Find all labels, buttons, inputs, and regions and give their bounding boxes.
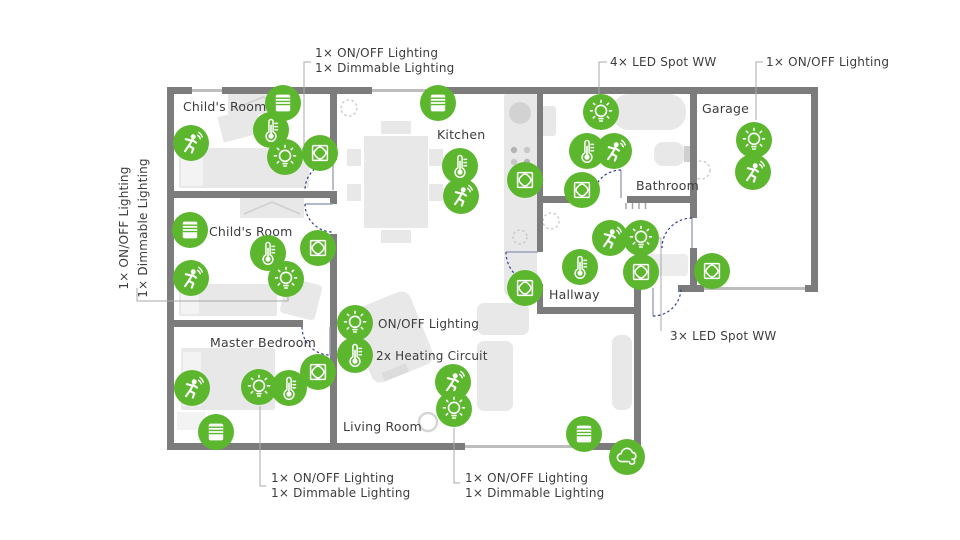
touch-switch-icon[interactable] [302, 135, 338, 171]
device-markers [172, 85, 772, 475]
legend-heating-circuit: 2x Heating Circuit [376, 349, 488, 363]
wall-segment [167, 191, 337, 198]
sofa [477, 303, 529, 335]
stove-burner [511, 147, 517, 153]
chair [347, 149, 361, 166]
annotation-bottom-center-line1: 1× ON/OFF Lighting [465, 471, 588, 485]
touch-switch-icon[interactable] [300, 354, 336, 390]
chair [381, 121, 411, 134]
wall-segment [634, 307, 641, 450]
touch-switch-icon[interactable] [564, 172, 600, 208]
room-label-kitchen: Kitchen [437, 127, 485, 142]
sink [509, 102, 531, 124]
toilet [654, 142, 684, 166]
annotation-bottom-center-line2: 1× Dimmable Lighting [465, 486, 604, 500]
motion-sensor-icon[interactable] [443, 178, 479, 214]
thermometer-icon[interactable] [337, 337, 373, 373]
bathtub [612, 94, 686, 130]
wall-segment [330, 320, 337, 327]
room-label-childs-room-1: Child's Room [183, 99, 266, 114]
room-label-bathroom: Bathroom [636, 178, 699, 193]
window [372, 89, 430, 92]
wall-segment [678, 285, 704, 292]
stove-burner [511, 159, 517, 165]
touch-switch-icon[interactable] [300, 230, 336, 266]
wall-segment [627, 196, 690, 203]
motion-sensor-icon[interactable] [174, 370, 210, 406]
stove-burner [524, 147, 530, 153]
door-swing-arc [662, 218, 692, 248]
lightbulb-icon[interactable] [623, 220, 659, 256]
weather-station-icon[interactable] [609, 439, 645, 475]
dining-table [364, 136, 428, 228]
lightbulb-icon[interactable] [267, 139, 303, 175]
smart-home-floor-plan: Child's Room Child's Room Master Bedroom… [0, 0, 960, 540]
blinds-icon[interactable] [198, 414, 234, 450]
chair [429, 184, 443, 201]
wall-segment [430, 87, 818, 94]
ceiling-lamp-icon [543, 213, 559, 229]
blinds-icon[interactable] [566, 416, 602, 452]
blinds-icon[interactable] [420, 85, 456, 121]
door-swing-arc [653, 288, 681, 316]
annotation-led-spot-bathroom: 4× LED Spot WW [610, 55, 716, 69]
annotation-bottom-left-line1: 1× ON/OFF Lighting [271, 471, 394, 485]
leader-line [304, 62, 311, 150]
touch-switch-icon[interactable] [507, 162, 543, 198]
motion-sensor-icon[interactable] [173, 260, 209, 296]
shelf [612, 335, 632, 410]
annotation-bottom-left-line2: 1× Dimmable Lighting [271, 486, 410, 500]
radiator [626, 203, 646, 209]
wall-segment [811, 87, 818, 292]
motion-sensor-icon[interactable] [173, 125, 209, 161]
thermometer-icon[interactable] [562, 249, 598, 285]
motion-sensor-icon[interactable] [596, 133, 632, 169]
touch-switch-icon[interactable] [623, 254, 659, 290]
room-label-master-bedroom: Master Bedroom [210, 335, 316, 350]
door-swing-arc [305, 204, 333, 232]
annotation-left-rotated-line1: 1× ON/OFF Lighting [117, 166, 131, 289]
annotation-led-spot-hallway: 3× LED Spot WW [670, 329, 776, 343]
annotation-left-rotated-line2: 1× Dimmable Lighting [136, 158, 150, 297]
toilet-tank [684, 146, 690, 162]
touch-switch-icon[interactable] [694, 253, 730, 289]
ceiling-lamp-icon [341, 100, 357, 116]
wall-segment [330, 234, 337, 450]
leader-line [454, 428, 460, 483]
chair [381, 230, 411, 243]
wardrobe [240, 198, 304, 218]
legend-onoff-lighting: ON/OFF Lighting [378, 317, 479, 331]
wall-segment [167, 320, 303, 327]
wall-segment [537, 307, 641, 314]
annotation-top-left-line2: 1× Dimmable Lighting [315, 61, 454, 75]
lightbulb-icon[interactable] [268, 261, 304, 297]
lightbulb-icon[interactable] [583, 94, 619, 130]
room-label-childs-room-2: Child's Room [209, 224, 292, 239]
motion-sensor-icon[interactable] [735, 154, 771, 190]
chair [347, 184, 361, 201]
wall-segment [167, 87, 174, 450]
window [465, 445, 582, 448]
annotation-top-left-line1: 1× ON/OFF Lighting [315, 46, 438, 60]
room-label-garage: Garage [702, 101, 749, 116]
room-label-hallway: Hallway [549, 287, 600, 302]
lightbulb-icon[interactable] [337, 305, 373, 341]
annotation-garage-lighting: 1× ON/OFF Lighting [766, 55, 889, 69]
blinds-icon[interactable] [172, 212, 208, 248]
chair [429, 149, 443, 166]
touch-switch-icon[interactable] [507, 270, 543, 306]
wall-segment [690, 87, 697, 218]
room-label-living-room: Living Room [343, 419, 422, 434]
window [192, 89, 222, 92]
lightbulb-icon[interactable] [736, 122, 772, 158]
lightbulb-icon[interactable] [436, 391, 472, 427]
motion-sensor-icon[interactable] [592, 220, 628, 256]
